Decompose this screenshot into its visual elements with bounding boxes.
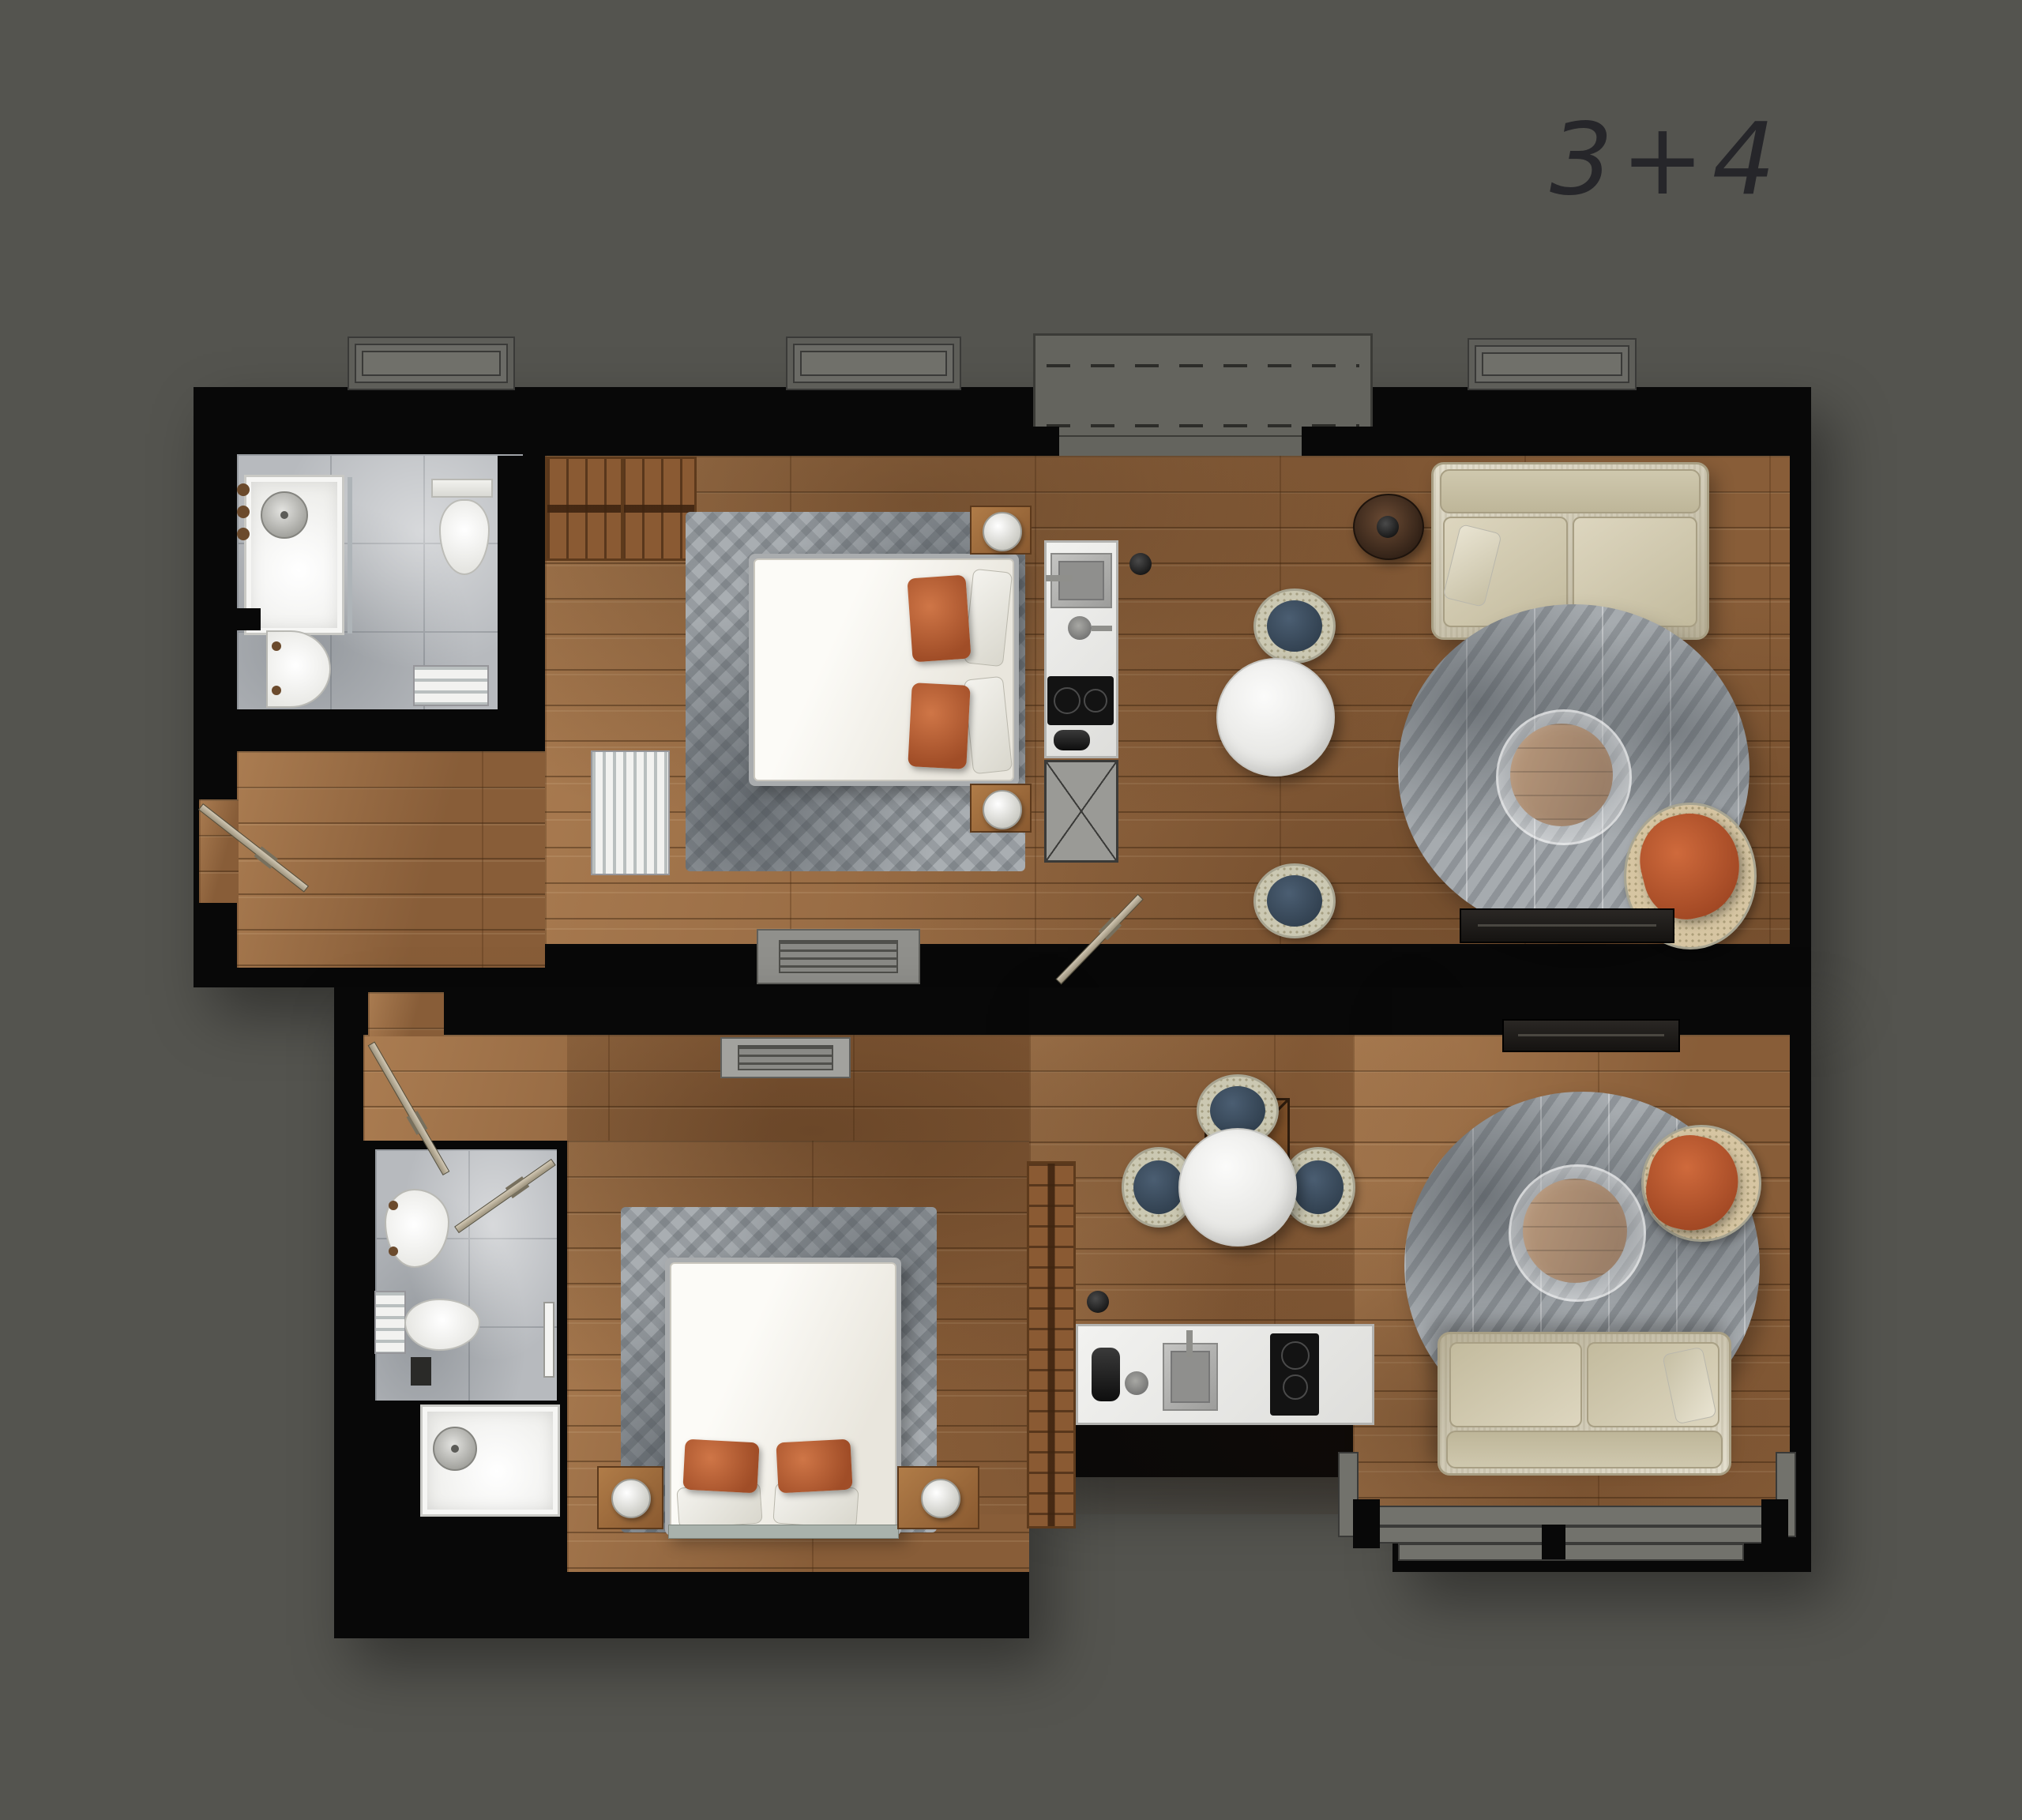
window-icon [1468, 338, 1637, 390]
floor-vent [720, 1037, 851, 1078]
side-table [1353, 494, 1424, 560]
kitchen-faucet [1186, 1330, 1193, 1357]
burner [1283, 1374, 1308, 1400]
door-stop [1087, 1291, 1109, 1313]
basin-tap [389, 1247, 398, 1256]
chair-seat [1267, 875, 1322, 927]
shower-glass [348, 477, 352, 634]
tv-console [1502, 1019, 1680, 1052]
basin-tap [272, 686, 281, 695]
wall-chunk [498, 456, 545, 743]
dining-chair [1253, 863, 1336, 938]
soap-shelf [237, 608, 261, 630]
table-lamp-icon [921, 1479, 960, 1518]
bed-pillow-orange [776, 1439, 852, 1494]
sofa-back [1440, 469, 1701, 513]
headboard [668, 1525, 899, 1539]
chair-seat [1293, 1160, 1344, 1214]
basin-tap [389, 1201, 398, 1210]
induction-cooktop [1047, 676, 1114, 725]
kitchen-counter [1076, 1324, 1374, 1425]
towel-radiator [374, 1291, 406, 1354]
table-lamp-icon [983, 790, 1022, 829]
bed-pillow-orange [907, 575, 971, 663]
sofa [1438, 1332, 1731, 1476]
shower-head-icon [433, 1427, 477, 1471]
sofa-back [1446, 1431, 1723, 1468]
vent-grille [738, 1045, 833, 1070]
terrace-dashed-line [1047, 364, 1359, 367]
flush-plate [411, 1357, 431, 1386]
shower-valve [237, 483, 250, 496]
kettle-icon [1054, 730, 1090, 750]
bed-pillow-orange [908, 682, 970, 769]
window-icon [348, 337, 515, 390]
burner [1054, 687, 1081, 714]
dining-table [1216, 658, 1335, 777]
burner [1281, 1341, 1310, 1370]
table-center [1377, 516, 1399, 538]
sofa-cushion [1449, 1342, 1582, 1427]
hanger-wardrobe [545, 457, 697, 561]
waste-disposal [1068, 616, 1092, 640]
bay-mullion [1542, 1525, 1565, 1559]
bay-corner-post [1353, 1499, 1380, 1548]
sink-bowl [1171, 1351, 1210, 1403]
coffee-table-glass [1509, 1164, 1646, 1302]
dining-table [1178, 1128, 1297, 1247]
kettle-icon [1092, 1348, 1120, 1401]
knob-handle [1092, 626, 1112, 631]
hanger-wardrobe [1027, 1161, 1076, 1529]
floor-plan-canvas: 3+4 [0, 0, 2022, 1820]
unit4-hall-floor [363, 1035, 1029, 1141]
burner [1084, 689, 1107, 713]
bay-corner-post [1761, 1499, 1788, 1548]
towel-rail [543, 1302, 554, 1378]
tv-console [1460, 908, 1674, 943]
shower-head-icon [261, 491, 308, 539]
towel-radiator [413, 665, 489, 706]
shower-valve [237, 506, 250, 518]
toilet-cistern [431, 479, 493, 498]
bay-window-step [1353, 1506, 1788, 1526]
chair-seat [1267, 600, 1322, 652]
radiator [591, 750, 670, 875]
small-appliance [1125, 1371, 1148, 1395]
appliance-cabinet [1044, 760, 1118, 863]
dining-chair [1253, 588, 1336, 664]
unit3-hallway-floor [237, 751, 545, 968]
bed-pillow-orange [682, 1439, 759, 1494]
bay-window-step [1398, 1544, 1744, 1561]
induction-cooktop [1270, 1333, 1319, 1416]
window-icon [786, 337, 961, 390]
bay-window-step [1376, 1526, 1766, 1544]
door-stop [1129, 553, 1152, 575]
table-lamp-icon [611, 1479, 651, 1518]
floor-vent [757, 929, 920, 984]
basin-tap [272, 641, 281, 651]
table-lamp-icon [983, 512, 1022, 551]
vent-grille [779, 940, 898, 973]
unit4-entry-opening [368, 992, 444, 1036]
kitchen-faucet [1046, 575, 1073, 581]
coffee-table-glass [1496, 709, 1632, 845]
unit4-bathroom-floor [375, 1149, 557, 1401]
chair-seat [1133, 1160, 1184, 1214]
shower-valve [237, 528, 250, 540]
plan-title: 3+4 [1550, 101, 1783, 217]
